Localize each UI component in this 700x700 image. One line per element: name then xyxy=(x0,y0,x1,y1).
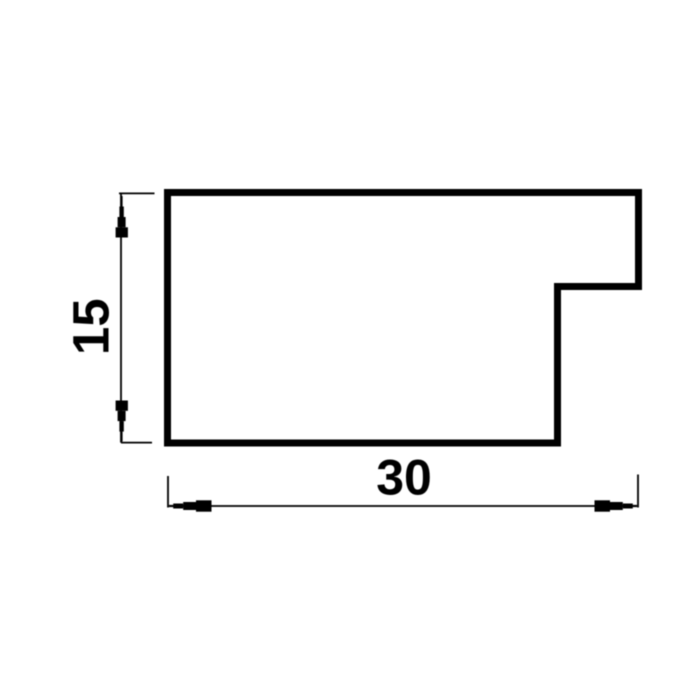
svg-text:15: 15 xyxy=(63,298,120,355)
svg-text:30: 30 xyxy=(376,450,432,506)
